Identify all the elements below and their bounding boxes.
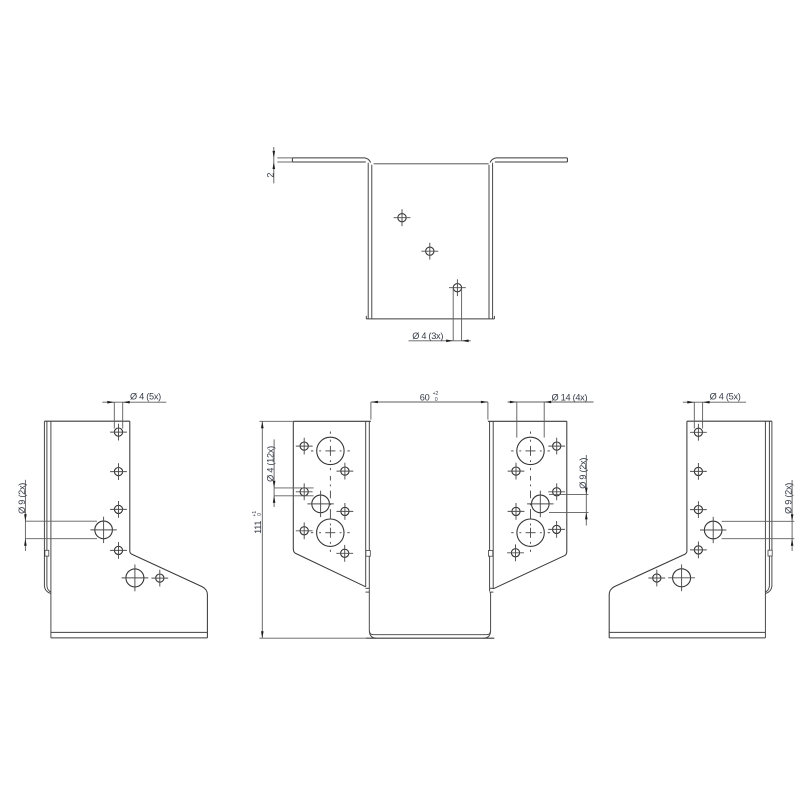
- svg-text:Ø 9 (2x): Ø 9 (2x): [784, 483, 794, 514]
- svg-text:Ø 4 (5x): Ø 4 (5x): [710, 391, 741, 401]
- svg-text:60: 60: [420, 393, 430, 403]
- svg-text:2: 2: [265, 173, 275, 178]
- svg-text:0: 0: [257, 513, 263, 516]
- svg-text:Ø 4 (3x): Ø 4 (3x): [412, 331, 443, 341]
- svg-text:Ø 4 (12x): Ø 4 (12x): [266, 446, 276, 482]
- svg-text:Ø 9 (2x): Ø 9 (2x): [578, 458, 588, 489]
- svg-text:Ø 9 (2x): Ø 9 (2x): [17, 483, 27, 514]
- svg-text:0: 0: [435, 397, 438, 403]
- svg-text:111: 111: [253, 521, 263, 534]
- svg-text:Ø 14 (4x): Ø 14 (4x): [552, 392, 588, 402]
- svg-text:Ø 4 (5x): Ø 4 (5x): [130, 391, 161, 401]
